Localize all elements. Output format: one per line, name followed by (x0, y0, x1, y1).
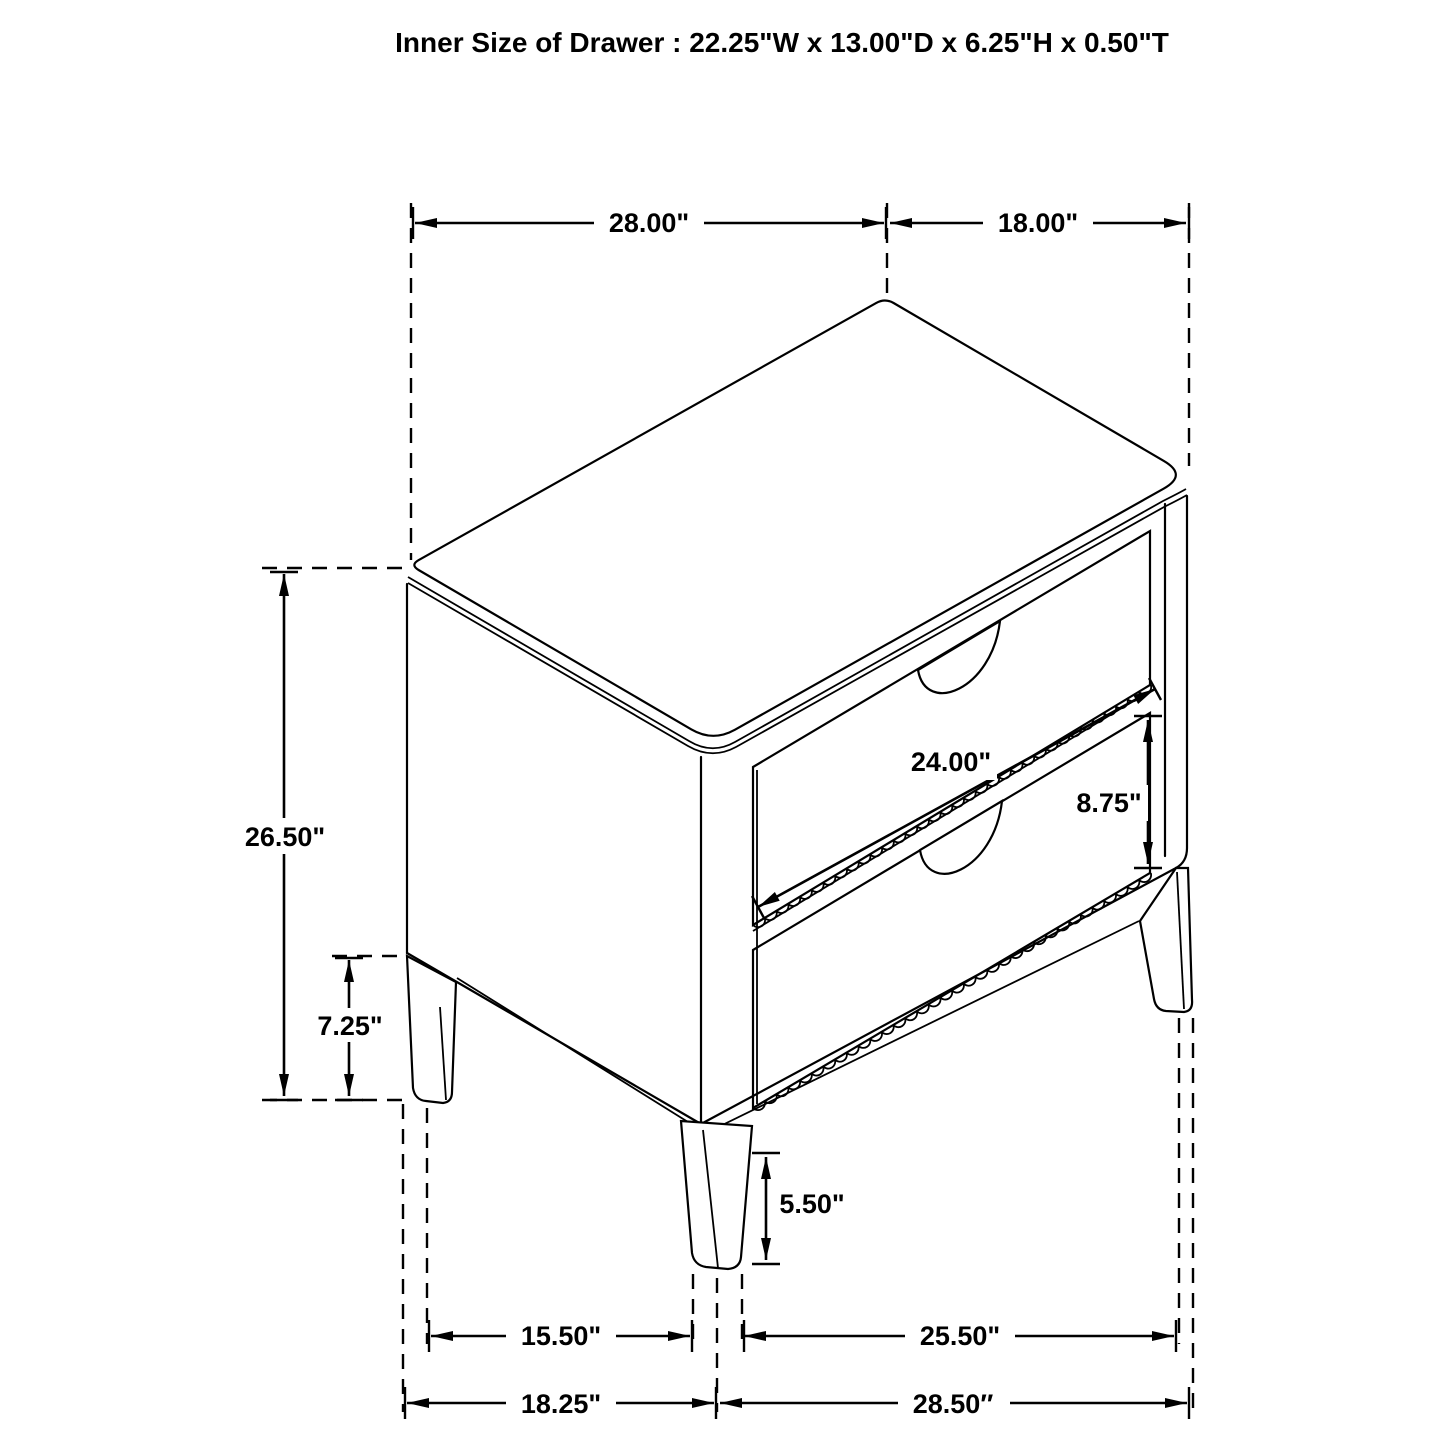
drawing-title: Inner Size of Drawer : 22.25"W x 13.00"D… (395, 27, 1169, 58)
nightstand-dimension-diagram: Inner Size of Drawer : 22.25"W x 13.00"D… (0, 0, 1445, 1445)
face-rail-underside (706, 921, 1139, 1133)
dim-label-side-leg-spacing: 25.50" (920, 1321, 1000, 1351)
dim-label-drawer-height: 8.75" (1076, 788, 1141, 818)
dim-label-side-clearance: 7.25" (317, 1011, 382, 1041)
left-leg (407, 956, 456, 1103)
dim-label-base-depth: 28.50″ (913, 1389, 994, 1419)
right-leg (1140, 868, 1192, 1012)
dim-label-top-width: 28.00" (609, 208, 689, 238)
face-bottom-edge (701, 868, 1176, 1124)
cabinet-top-surface (414, 300, 1176, 735)
dim-label-base-width: 18.25" (521, 1389, 601, 1419)
drawing-page: Inner Size of Drawer : 22.25"W x 13.00"D… (0, 0, 1445, 1445)
dim-label-front-leg-spacing: 15.50" (521, 1321, 601, 1351)
dim-label-leg-height: 5.50" (779, 1189, 844, 1219)
dim-label-overall-height: 26.50" (245, 822, 325, 852)
corner-post-outer-edge (1176, 496, 1187, 868)
cabinet-drawing (407, 300, 1192, 1269)
dim-label-drawer-width: 24.00" (911, 747, 991, 777)
side-rail-underside (457, 978, 688, 1122)
dim-label-top-depth: 18.00" (998, 208, 1078, 238)
